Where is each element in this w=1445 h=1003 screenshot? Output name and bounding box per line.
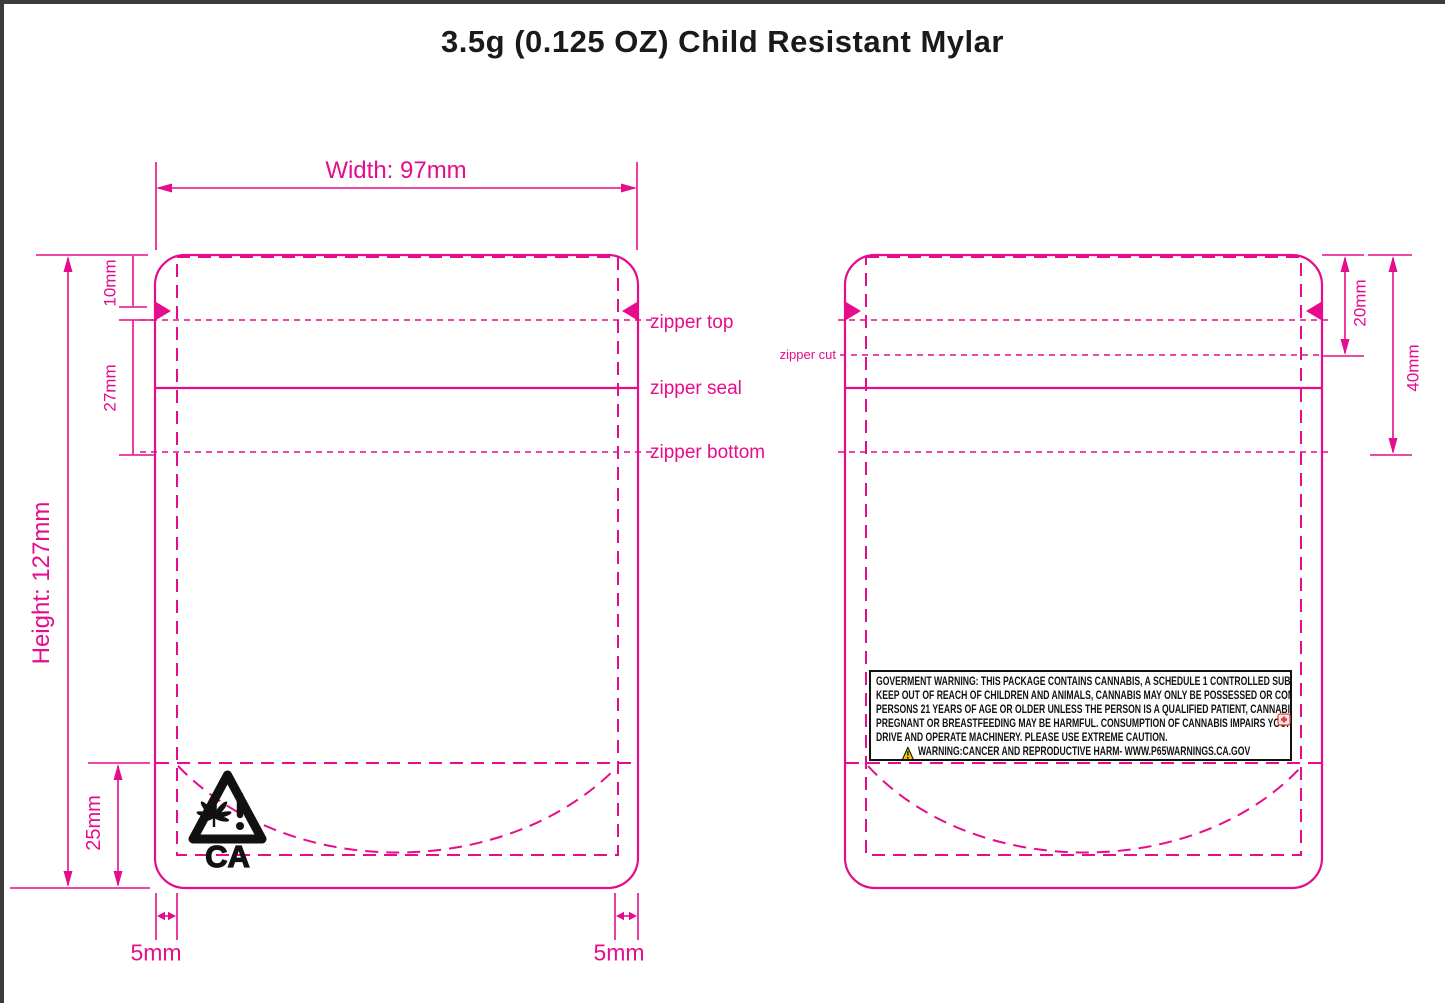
arrow-up-icon xyxy=(64,256,73,272)
arrow-left-icon xyxy=(156,184,172,193)
back-bag-outline xyxy=(845,255,1322,888)
tear-notch-dimension-label: 10mm xyxy=(102,259,119,306)
zipper-cut-label: zipper cut xyxy=(740,348,836,361)
back-seal-margin-dashed xyxy=(866,257,1301,855)
broken-image-icon xyxy=(1277,713,1291,726)
back-gusset-arc xyxy=(868,766,1300,853)
exclamation-icon xyxy=(236,795,244,830)
arrow-up-icon xyxy=(114,764,123,780)
seal-left-dimension xyxy=(156,893,177,940)
zipper-area-dimension-label: 40mm xyxy=(1405,344,1422,391)
bottom-gusset-dimension-label: 25mm xyxy=(84,795,104,851)
zipper-span-dimension xyxy=(119,320,156,455)
hazard-triangle-icon xyxy=(902,746,915,761)
tear-notch-left-icon xyxy=(156,302,171,320)
seal-right-dimension-label: 5mm xyxy=(593,942,644,965)
ca-symbol-text: CA xyxy=(205,839,250,870)
seal-left-dimension-label: 5mm xyxy=(130,942,181,965)
zipper-cut-dimension-label: 20mm xyxy=(1352,279,1369,326)
width-dimension-label: Width: 97mm xyxy=(325,159,466,183)
prop65-warning-text: WARNING:CANCER AND REPRODUCTIVE HARM- WW… xyxy=(918,746,1250,760)
zipper-seal-label: zipper seal xyxy=(650,379,742,398)
warning-line: PERSONS 21 YEARS OF AGE OR OLDER UNLESS … xyxy=(876,704,1292,718)
government-warning-box: GOVERMENT WARNING: THIS PACKAGE CONTAINS… xyxy=(869,670,1292,761)
tear-notch-dimension xyxy=(119,256,147,307)
arrow-down-icon xyxy=(64,871,73,887)
height-dimension-label: Height: 127mm xyxy=(30,502,54,665)
back-bag xyxy=(838,255,1330,888)
warning-line: WARNING:CANCER AND REPRODUCTIVE HARM- WW… xyxy=(876,746,1292,761)
zipper-top-label: zipper top xyxy=(650,313,733,332)
tear-notch-right-icon xyxy=(622,302,637,320)
zipper-bottom-label: zipper bottom xyxy=(650,443,765,462)
back-tear-notch-right-icon xyxy=(1306,302,1321,320)
zipper-span-dimension-label: 27mm xyxy=(102,364,119,411)
arrow-down-icon xyxy=(114,871,123,887)
government-warning-text: GOVERMENT WARNING: THIS PACKAGE CONTAINS… xyxy=(876,676,1292,761)
warning-line: GOVERMENT WARNING: THIS PACKAGE CONTAINS… xyxy=(876,676,1292,690)
warning-line: PREGNANT OR BREASTFEEDING MAY BE HARMFUL… xyxy=(876,718,1292,732)
back-tear-notch-left-icon xyxy=(846,302,861,320)
arrow-right-icon xyxy=(621,184,637,193)
warning-line: KEEP OUT OF REACH OF CHILDREN AND ANIMAL… xyxy=(876,690,1292,704)
warning-line: DRIVE AND OPERATE MACHINERY. PLEASE USE … xyxy=(876,732,1292,746)
ca-cannabis-warning-icon: CA xyxy=(180,755,275,870)
seal-right-dimension xyxy=(615,893,638,940)
